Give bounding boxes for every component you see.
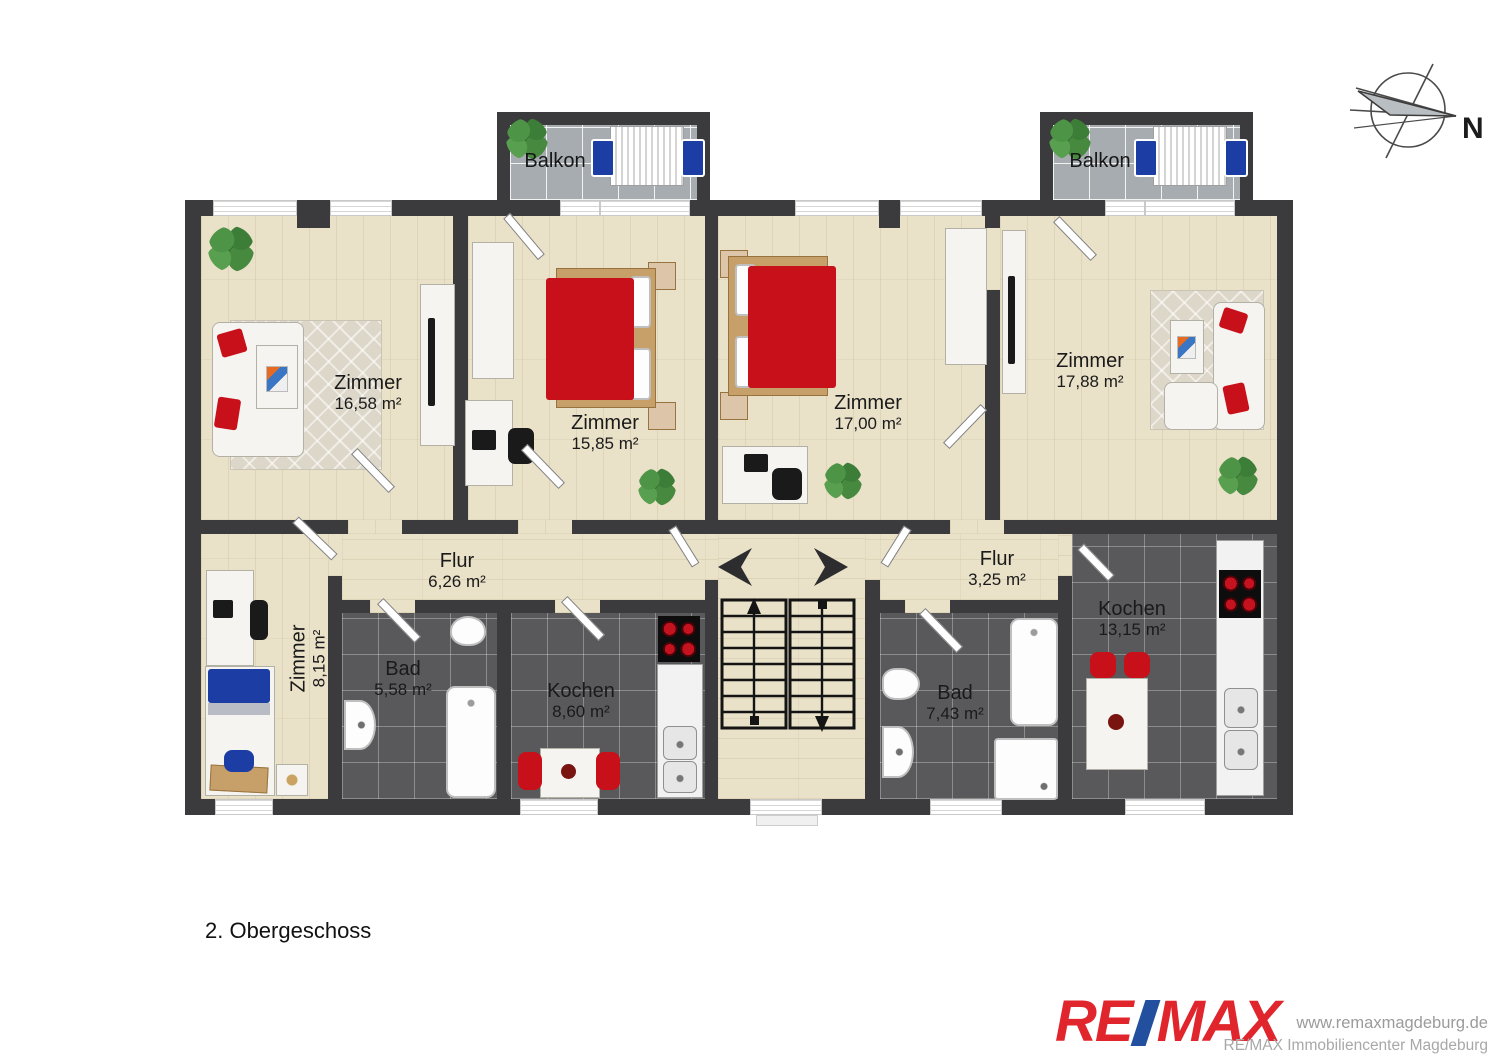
- bowl: [561, 764, 576, 779]
- room-label-bad-7-43: Bad7,43 m²: [885, 682, 1025, 723]
- window: [930, 799, 1002, 815]
- balcony-chair: [1224, 139, 1248, 177]
- sofa: [1164, 382, 1218, 430]
- floor-plan: N N Balkon Balkon: [0, 0, 1500, 1060]
- bed-blanket: [546, 278, 634, 400]
- room-label-zimmer-8-15: Zimmer8,15 m²: [288, 589, 329, 729]
- compass-north-label: N: [1462, 112, 1484, 145]
- website-url: www.remaxmagdeburg.de: [1296, 1014, 1488, 1033]
- staircase: [705, 534, 880, 800]
- desk-monitor: [213, 600, 233, 618]
- sofa-pillow: [214, 396, 242, 430]
- nightstand: [276, 764, 308, 796]
- company-name: RE/MAX Immobiliencenter Magdeburg: [1224, 1037, 1488, 1055]
- window: [795, 200, 879, 216]
- nightstand: [720, 392, 748, 420]
- wall-pier: [879, 216, 900, 228]
- tv: [1008, 276, 1015, 364]
- dining-chair: [1124, 652, 1150, 678]
- balcony-left-label: Balkon: [505, 150, 605, 173]
- plant-icon: [208, 226, 254, 272]
- room-label-bad-5-58: Bad5,58 m²: [333, 658, 473, 699]
- balcony-door: [560, 200, 600, 216]
- bed-stripe: [208, 703, 270, 715]
- desk: [206, 570, 254, 666]
- floor-title: 2. Obergeschoss: [205, 918, 371, 944]
- tv-board: [420, 284, 455, 446]
- plant-icon: [1218, 456, 1258, 496]
- kitchen-sink: [663, 726, 697, 760]
- bathtub: [446, 686, 496, 798]
- desk-chair: [772, 468, 802, 500]
- bath-sink: [882, 726, 914, 778]
- entry-arrow-right: [814, 548, 848, 586]
- kitchen-sink: [663, 761, 697, 793]
- wall-pier: [297, 216, 330, 228]
- bath-sink: [344, 700, 376, 750]
- balcony-table: [1153, 126, 1227, 186]
- room-label-kochen-8-60: Kochen8,60 m²: [511, 680, 651, 721]
- balcony-chair: [681, 139, 705, 177]
- kitchen-sink: [1224, 688, 1258, 728]
- kitchen-sink: [1224, 730, 1258, 770]
- room-label-zimmer-15-85: Zimmer15,85 m²: [535, 412, 675, 453]
- wardrobe: [472, 242, 514, 379]
- room-label-flur-6-26: Flur6,26 m²: [387, 550, 527, 591]
- doorway: [518, 520, 572, 534]
- dining-chair: [1090, 652, 1116, 678]
- plant-icon: [824, 462, 862, 500]
- window: [600, 200, 690, 216]
- window: [520, 799, 598, 815]
- window: [213, 200, 297, 216]
- window: [330, 200, 392, 216]
- magazine: [1177, 336, 1196, 359]
- room-label-zimmer-17-00: Zimmer17,00 m²: [798, 392, 938, 433]
- balcony-door: [1105, 200, 1145, 216]
- window: [1125, 799, 1205, 815]
- bowl: [1108, 714, 1124, 730]
- room-label-flur-3-25: Flur3,25 m²: [927, 548, 1067, 589]
- balcony-table: [610, 126, 684, 186]
- doorway: [950, 520, 1004, 534]
- dining-chair: [518, 752, 542, 790]
- bed-cushion: [224, 750, 254, 772]
- room-label-zimmer-16-58: Zimmer16,58 m²: [298, 372, 438, 413]
- window: [1145, 200, 1235, 216]
- entry-arrow-left: [718, 548, 752, 586]
- window: [215, 799, 273, 815]
- stove-icon: [658, 616, 700, 662]
- plant-icon: [638, 468, 676, 506]
- bed-blanket: [748, 266, 836, 388]
- magazine: [266, 366, 288, 392]
- room-label-kochen-13-15: Kochen13,15 m²: [1062, 598, 1202, 639]
- entrance-door: [750, 799, 822, 815]
- balcony-right-label: Balkon: [1050, 150, 1150, 173]
- desk-monitor: [472, 430, 496, 450]
- compass-icon: N: [1348, 58, 1498, 163]
- dining-chair: [596, 752, 620, 790]
- stove-icon: [1219, 570, 1261, 618]
- remax-logo-slash-icon: [1130, 1000, 1160, 1046]
- bed-blanket: [208, 669, 270, 703]
- shower: [994, 738, 1058, 800]
- doorway: [985, 228, 1000, 290]
- desk-monitor: [744, 454, 768, 472]
- doorway: [348, 520, 402, 534]
- window: [900, 200, 982, 216]
- entrance-step: [756, 815, 818, 826]
- desk-chair: [250, 600, 268, 640]
- room-label-zimmer-17-88: Zimmer17,88 m²: [1020, 350, 1160, 391]
- wardrobe: [945, 228, 987, 365]
- remax-logo-re: RE: [1055, 989, 1132, 1054]
- toilet: [450, 616, 486, 646]
